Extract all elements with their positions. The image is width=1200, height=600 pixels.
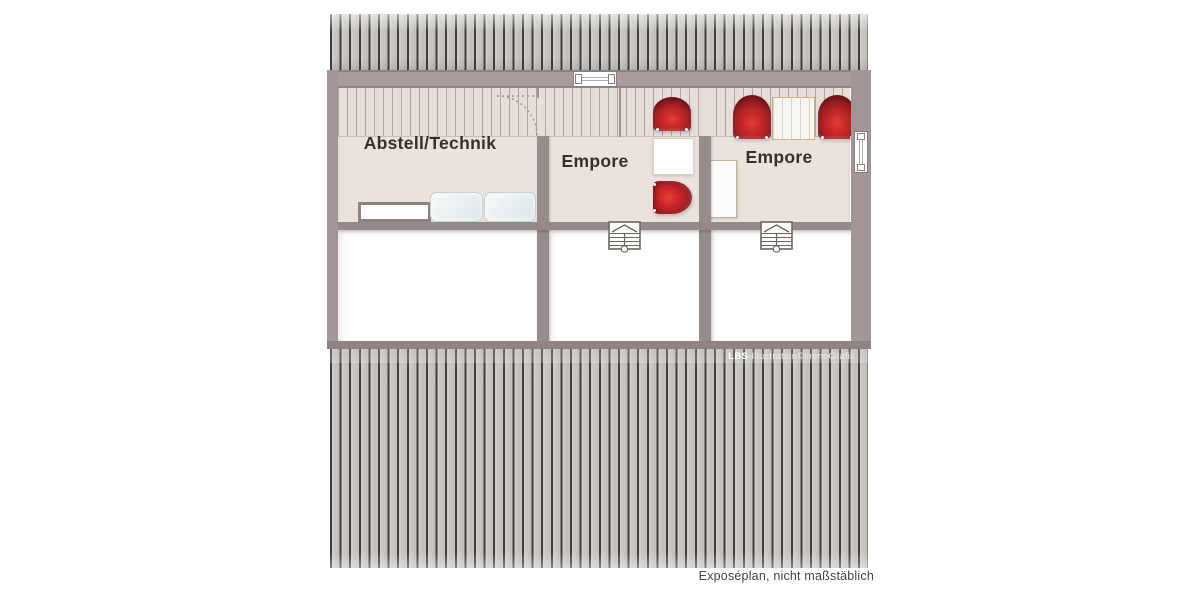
- window-icon: [573, 71, 617, 87]
- armchair-icon: [733, 95, 771, 139]
- room-label-abstell-technik: Abstell/Technik: [355, 133, 505, 154]
- sofa-cushion: [484, 192, 537, 222]
- sofa-cushion: [430, 192, 483, 222]
- watermark-text: -Illustration©immoGrafik: [748, 351, 855, 362]
- ceiling-hatch-gap: [699, 88, 711, 137]
- stairs-icon: [760, 221, 793, 253]
- cabinet-icon: [358, 202, 431, 222]
- roof-hatch-bottom: LBS-Illustration©immoGrafik: [330, 349, 868, 568]
- sofa-icon: [430, 192, 536, 222]
- table-icon: [653, 138, 694, 175]
- watermark-brand: LBS: [728, 351, 748, 362]
- interior-wall: [338, 222, 612, 230]
- open-door-icon: [707, 160, 737, 218]
- room-label-empore-middle: Empore: [540, 151, 650, 172]
- footer-note: Exposéplan, nicht maßstäblich: [699, 569, 874, 583]
- partition-line: [619, 88, 621, 137]
- floorplan-canvas: LBS-Illustration©immoGrafik Abstell/Tech…: [0, 0, 1200, 600]
- roof-hatch-top: [330, 14, 868, 70]
- room-label-empore-right: Empore: [724, 147, 834, 168]
- interior-wall: [790, 222, 851, 230]
- interior-wall: [638, 222, 762, 230]
- exterior-wall-bottom: [327, 341, 871, 349]
- exterior-wall-left: [327, 70, 338, 349]
- interior-wall: [699, 136, 711, 341]
- armchair-icon: [653, 181, 692, 214]
- table-icon: [772, 97, 815, 140]
- lower-room-left: [338, 230, 537, 341]
- window-icon: [854, 131, 868, 173]
- exterior-wall-right: [851, 70, 871, 349]
- watermark: LBS-Illustration©immoGrafik: [330, 349, 868, 363]
- interior-wall: [537, 136, 549, 341]
- stairs-icon: [608, 221, 641, 253]
- armchair-icon: [653, 97, 691, 131]
